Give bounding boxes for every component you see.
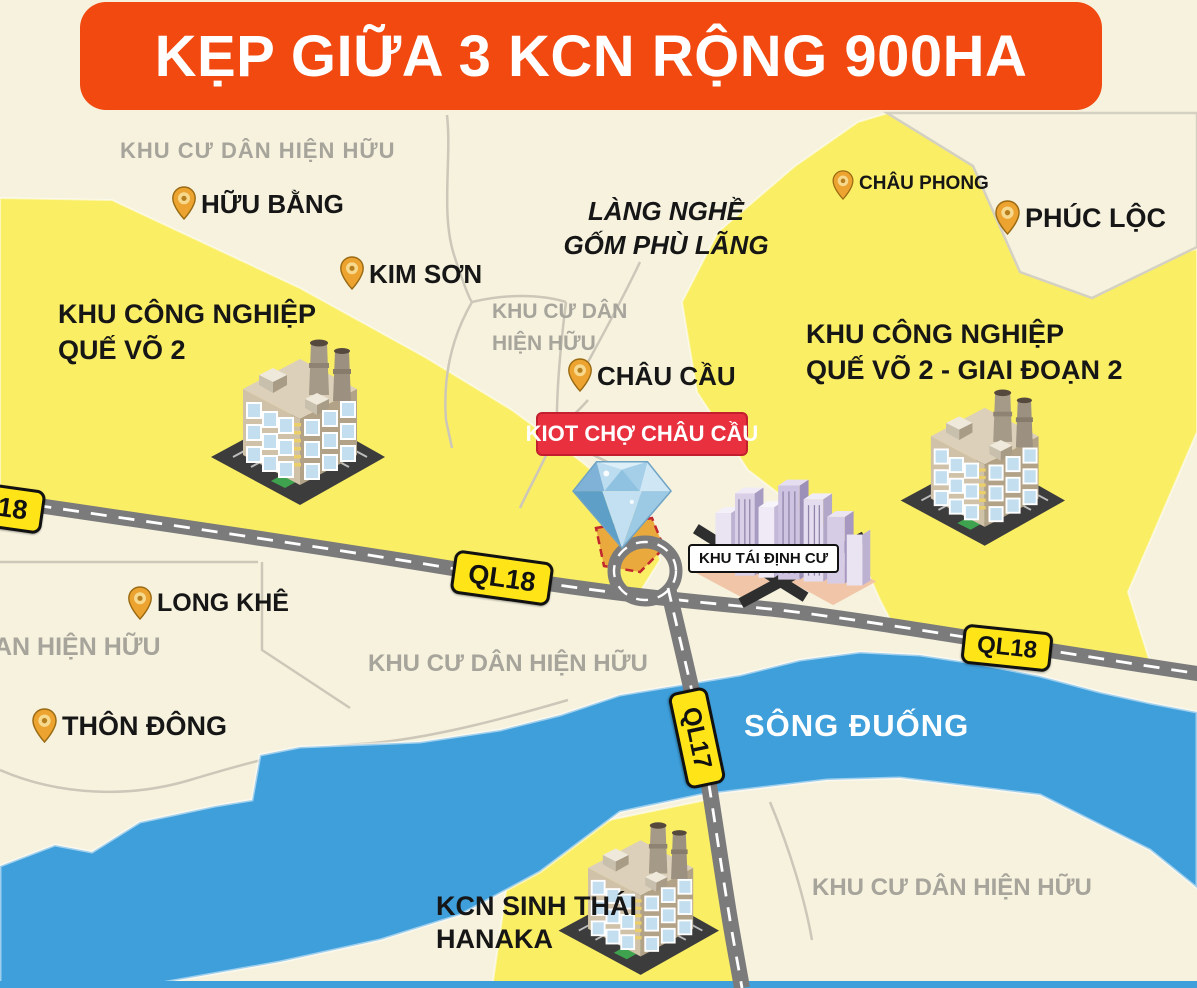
zone-label-que-vo-2-gd2: KHU CÔNG NGHIỆP QUẾ VÕ 2 - GIAI ĐOẠN 2: [806, 316, 1123, 388]
diamond-icon: [563, 448, 681, 551]
factory-illustration-que-vo-2-gd2: [895, 385, 1065, 546]
residential-label-mid: KHU CƯ DÂN HIỆN HỮU: [492, 296, 627, 360]
place-phuc-loc: PHÚC LỘC: [995, 200, 1166, 235]
place-long-khe: LONG KHÊ: [128, 586, 289, 620]
map-infographic: KẸP GIỮA 3 KCN RỘNG 900HA KHU CƯ DÂN HIỆ…: [0, 0, 1197, 988]
place-chau-phong: CHÂU PHONG: [832, 170, 989, 200]
location-pin-icon: [995, 200, 1020, 235]
zone-label-hanaka: KCN SINH THÁI HANAKA: [436, 890, 637, 956]
place-kim-son: KIM SƠN: [340, 256, 482, 290]
residential-label-below-ql18: KHU CƯ DÂN HIỆN HỮU: [368, 650, 648, 679]
kiot-market-badge: KIOT CHỢ CHÂU CẦU: [536, 412, 748, 456]
location-pin-icon: [128, 586, 152, 620]
residential-label-top: KHU CƯ DÂN HIỆN HỮU: [120, 138, 396, 164]
location-pin-icon: [568, 358, 592, 392]
location-pin-icon: [172, 186, 196, 220]
river-bottom-strip: [0, 981, 1197, 988]
residential-label-bottom-right: KHU CƯ DÂN HIỆN HỮU: [812, 874, 1092, 903]
headline-banner: KẸP GIỮA 3 KCN RỘNG 900HA: [80, 2, 1102, 110]
place-huu-bang: HỮU BẰNG: [172, 186, 344, 220]
headline-text: KẸP GIỮA 3 KCN RỘNG 900HA: [155, 23, 1028, 90]
city-illustration-resettlement: [688, 452, 884, 619]
location-pin-icon: [832, 170, 854, 200]
location-pin-icon: [32, 708, 57, 743]
zone-label-que-vo-2: KHU CÔNG NGHIỆP QUẾ VÕ 2: [58, 296, 316, 368]
residential-label-left-partial: AN HIỆN HỮU: [0, 632, 161, 662]
river-name-label: SÔNG ĐUỐNG: [744, 708, 969, 744]
place-thon-dong: THÔN ĐÔNG: [32, 708, 227, 743]
location-pin-icon: [340, 256, 364, 290]
resettlement-area-badge: KHU TÁI ĐỊNH CƯ: [688, 544, 839, 573]
place-chau-cau: CHÂU CẦU: [568, 358, 736, 392]
craft-village-label: LÀNG NGHỀ GỐM PHÙ LÃNG: [548, 194, 784, 262]
